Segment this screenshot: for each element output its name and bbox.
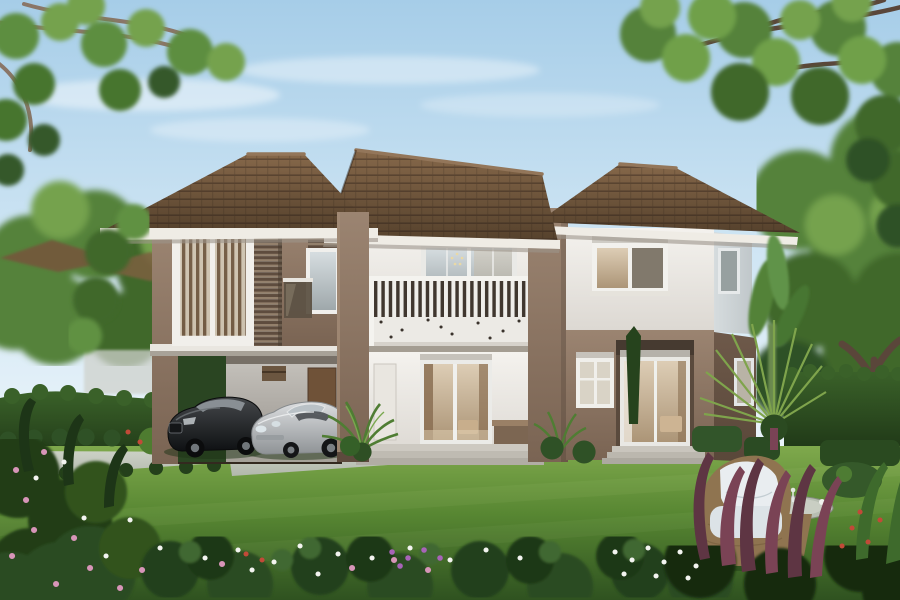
louver-edge-shade [278,226,282,346]
niche-window-glass [310,252,336,310]
side-door [374,364,396,440]
window-sill [590,291,670,296]
roller-shutter-box [420,354,492,361]
planter-wall [494,424,532,446]
tree-blob [810,300,900,350]
cloud [150,118,370,142]
cloud [420,93,660,117]
window-mullion [628,248,632,288]
upper-side-window-glass [721,251,737,291]
railing-bottom-rail [370,342,534,346]
curtain [479,364,488,440]
carport-vent [262,366,286,381]
balustrade-cap [283,278,313,282]
rendering-canvas [0,0,900,600]
wheel-rim [191,444,199,452]
railing-post [369,276,374,346]
railing-top-rail [370,276,534,281]
wheel-rim [242,442,250,450]
door-mullion [453,364,457,440]
railing-lower-band [372,317,532,344]
entry-step [356,458,544,465]
wheel-rim [288,447,295,454]
boxwood [692,426,742,452]
convertible-grille [256,435,284,440]
window-mullion [594,362,597,404]
hedge-bump [792,371,898,374]
entry-step [361,451,539,458]
upper-window-glass [631,248,663,288]
upper-window-glass [597,248,628,288]
interior-sofa [660,416,682,432]
bed-foliage [10,572,90,598]
box-window-mullion [210,234,215,336]
house-rendering [0,0,900,600]
sedan-grille [169,423,182,433]
curtain [424,364,433,440]
patio-step [607,452,705,458]
patio-step [602,458,710,464]
convertible-headlight [272,421,281,427]
pier-highlight [337,212,340,462]
boxwood-row [820,440,900,466]
roller-shade [576,352,614,358]
window-transom [580,378,610,381]
railing-upper-slats [372,281,532,317]
convertible-headlight [256,426,267,433]
louver-wall [254,226,282,346]
neighbor-wall [84,350,154,394]
planter-wall-top [492,420,534,426]
patio-step [612,446,700,452]
entry-step [366,444,534,451]
wheel-rim [327,444,335,452]
door-mullion [654,361,657,442]
soffit-shadow [150,351,342,356]
cloud [240,56,540,84]
vent-slat [262,371,286,373]
fan-palm-stem [770,428,778,450]
